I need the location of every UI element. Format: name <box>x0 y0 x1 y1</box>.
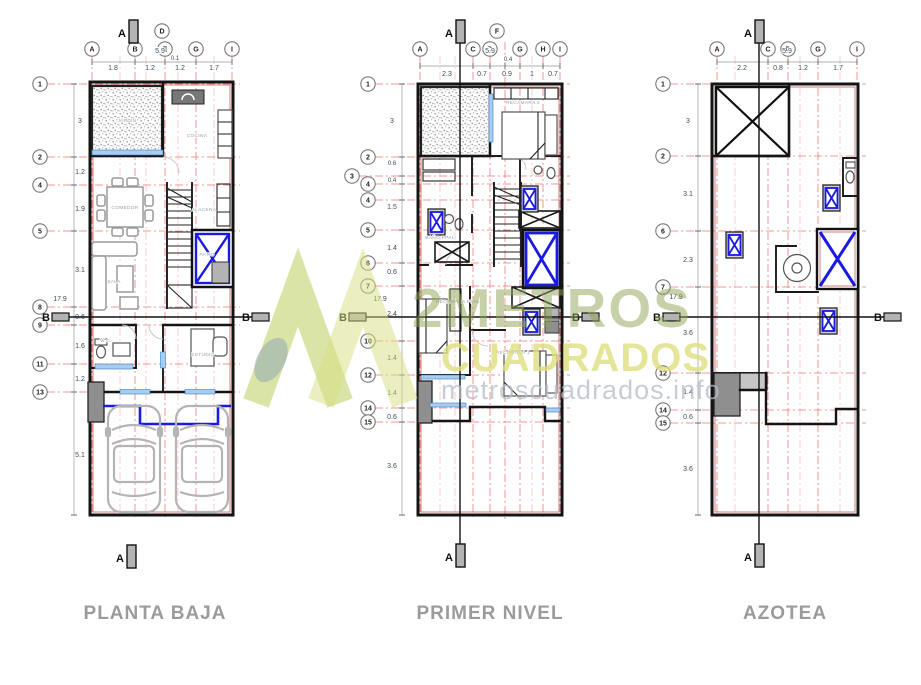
grid-bubble-row: 5 <box>33 224 47 238</box>
window-shaft-blue-x <box>521 186 538 212</box>
grid-bubble-col-a: A <box>710 42 724 56</box>
svg-text:2: 2 <box>366 155 370 162</box>
svg-text:1.2: 1.2 <box>75 376 85 383</box>
grid-bubble-row: 4 <box>33 178 47 192</box>
svg-text:I: I <box>231 47 233 54</box>
grid-bubble-col-b: B <box>128 42 142 56</box>
svg-text:B: B <box>874 312 882 324</box>
svg-text:A: A <box>445 552 453 564</box>
svg-text:15: 15 <box>364 420 372 427</box>
bed-bedroom2 <box>502 112 557 159</box>
section-flag-a-top <box>456 20 465 43</box>
watermark-website: metroscuadrados.info <box>441 375 721 405</box>
svg-text:1: 1 <box>38 82 42 89</box>
stairs <box>167 188 192 308</box>
grid-bubble-row: 12 <box>361 368 375 382</box>
walls <box>712 84 858 515</box>
grid-bubble-col-c: C <box>466 42 480 56</box>
svg-text:5.9: 5.9 <box>485 48 495 55</box>
svg-text:3: 3 <box>686 118 690 125</box>
section-flag-a-top <box>755 20 764 43</box>
grid-bubble-col-g: G <box>811 42 825 56</box>
svg-text:A: A <box>417 47 422 54</box>
floor-plan-drawing: JARDIN COCINA COMEDOR SALA ALACENA PATIO… <box>0 0 921 685</box>
skylight-blue-x <box>820 308 837 334</box>
section-flag-b-right <box>884 313 901 321</box>
svg-text:F: F <box>495 29 500 36</box>
svg-text:A: A <box>89 47 94 54</box>
svg-text:0.4: 0.4 <box>504 57 513 63</box>
svg-text:4: 4 <box>366 198 370 205</box>
svg-text:3.6: 3.6 <box>683 466 693 473</box>
closet-block <box>418 381 432 423</box>
plan-titles: PLANTA BAJA PRIMER NIVEL AZOTEA <box>84 603 828 624</box>
svg-text:13: 13 <box>36 390 44 397</box>
svg-text:2.3: 2.3 <box>683 257 693 264</box>
grid-bubble-row: 14 <box>361 401 375 415</box>
svg-text:1: 1 <box>366 82 370 89</box>
svg-text:6: 6 <box>661 229 665 236</box>
bath-fixtures-top <box>534 166 555 179</box>
room-label-service-patio: PATIO <box>199 252 214 258</box>
section-flag-a-bottom <box>127 545 136 568</box>
grid-bubble-row: 4 <box>361 193 375 207</box>
svg-text:A: A <box>118 28 126 40</box>
grid-bubble-row: 13 <box>33 385 47 399</box>
svg-text:14: 14 <box>364 406 372 413</box>
svg-text:1: 1 <box>530 71 534 78</box>
svg-text:A: A <box>116 553 124 565</box>
roof-void-x <box>716 87 789 156</box>
plan-planta-baja: JARDIN COCINA COMEDOR SALA ALACENA PATIO… <box>33 20 269 568</box>
grid-bubble-row: 11 <box>33 357 47 371</box>
svg-text:3: 3 <box>350 174 354 181</box>
title-planta-baja: PLANTA BAJA <box>84 603 227 624</box>
range-hood <box>172 90 204 104</box>
grid-bubble-col-c: C <box>761 42 775 56</box>
drawing-sheet: JARDIN COCINA COMEDOR SALA ALACENA PATIO… <box>0 0 921 685</box>
svg-text:1.9: 1.9 <box>75 206 85 213</box>
room-label-pantry: ALACENA <box>192 207 217 213</box>
svg-text:1.7: 1.7 <box>209 65 219 72</box>
grid-bubble-row: 2 <box>361 150 375 164</box>
svg-text:1.4: 1.4 <box>387 245 397 252</box>
water-heater <box>212 262 229 283</box>
garage-gate-line <box>103 406 231 424</box>
room-label-wc: W.C. <box>100 338 112 344</box>
svg-text:0.6: 0.6 <box>683 414 693 421</box>
svg-text:3.1: 3.1 <box>683 191 693 198</box>
stairs <box>494 187 521 259</box>
grid-bubble-row: 15 <box>361 415 375 429</box>
svg-text:0.6: 0.6 <box>387 414 397 421</box>
svg-text:A: A <box>714 47 719 54</box>
window-shaft-blue-x <box>428 209 445 235</box>
svg-text:1.5: 1.5 <box>387 204 397 211</box>
svg-text:I: I <box>559 47 561 54</box>
svg-text:0.9: 0.9 <box>502 71 512 78</box>
brand-logo-m <box>247 287 405 403</box>
roof-bath <box>776 246 818 292</box>
svg-text:5.1: 5.1 <box>75 452 85 459</box>
grid-bubble-col-i: I <box>553 42 567 56</box>
grid-bubbles-rows: 1 2 3 4 4 5 6 7 10 12 14 15 <box>345 77 375 429</box>
svg-text:3: 3 <box>78 118 82 125</box>
stair-shaft <box>817 229 858 289</box>
parapet-steps <box>712 373 858 424</box>
svg-text:5: 5 <box>366 228 370 235</box>
skylight-blue-x <box>823 185 840 211</box>
section-flag-a-bottom <box>755 544 764 567</box>
svg-text:0.8: 0.8 <box>773 65 783 72</box>
grid-bubble-row: 2 <box>33 150 47 164</box>
pantry-cabinet <box>217 184 230 226</box>
sofa-set <box>92 242 138 310</box>
grid-bubble-col-h: H <box>536 42 550 56</box>
grid-bubble-col-g: G <box>513 42 527 56</box>
grid-bubble-row: 1 <box>656 77 670 91</box>
title-primer-nivel: PRIMER NIVEL <box>416 603 563 624</box>
svg-text:1.2: 1.2 <box>145 65 155 72</box>
svg-text:0.6: 0.6 <box>387 269 397 276</box>
grid-bubbles-rows: 1 2 4 5 8 9 11 13 <box>33 77 47 399</box>
svg-text:0.4: 0.4 <box>388 178 397 184</box>
grid-bubble-row: 2 <box>656 149 670 163</box>
car-left <box>106 406 162 512</box>
svg-text:B: B <box>242 312 250 324</box>
watermark-brand-bottom: CUADRADOS <box>441 336 710 380</box>
grid-bubble-col-i: I <box>850 42 864 56</box>
service-patio-shaft <box>192 230 233 287</box>
grid-bubble-row: 1 <box>33 77 47 91</box>
svg-text:G: G <box>815 47 821 54</box>
room-label-kitchen: COCINA <box>187 133 208 139</box>
svg-text:B: B <box>42 312 50 324</box>
section-flag-a-bottom <box>456 544 465 567</box>
svg-text:0.7: 0.7 <box>477 71 487 78</box>
svg-text:3.1: 3.1 <box>75 267 85 274</box>
svg-text:G: G <box>517 47 523 54</box>
svg-text:11: 11 <box>36 362 44 369</box>
grid-bubble-row: 5 <box>361 223 375 237</box>
section-flag-b-left <box>52 313 69 321</box>
grid-bubble-col-a: A <box>85 42 99 56</box>
skylight-blue-x <box>726 232 743 258</box>
grid-bubble-col-a: A <box>413 42 427 56</box>
grid-bubble-col-f: F <box>490 24 504 38</box>
grid-bubble-col-d: D <box>155 24 169 38</box>
svg-text:5: 5 <box>38 229 42 236</box>
svg-text:3.6: 3.6 <box>387 463 397 470</box>
watermark-brand-top: 2METROS <box>412 277 692 339</box>
svg-text:5.9: 5.9 <box>155 48 165 55</box>
svg-text:17.9: 17.9 <box>53 296 67 303</box>
room-label-study: ESTUDIO <box>191 352 214 358</box>
car-right <box>174 406 230 512</box>
svg-text:15: 15 <box>659 421 667 428</box>
svg-text:2: 2 <box>661 154 665 161</box>
svg-text:1: 1 <box>661 82 665 89</box>
svg-text:2.2: 2.2 <box>737 65 747 72</box>
svg-text:B: B <box>132 47 137 54</box>
svg-text:0.1: 0.1 <box>171 56 180 62</box>
room-label-living: SALA <box>107 279 121 285</box>
svg-text:A: A <box>744 552 752 564</box>
svg-text:0.7: 0.7 <box>548 71 558 78</box>
room-label-garden: JARDIN <box>117 118 136 124</box>
svg-text:1.2: 1.2 <box>75 169 85 176</box>
svg-text:C: C <box>470 47 475 54</box>
pilaster <box>88 382 104 422</box>
svg-text:4: 4 <box>38 183 42 190</box>
svg-text:1.2: 1.2 <box>798 65 808 72</box>
svg-text:2.3: 2.3 <box>442 71 452 78</box>
room-label-main-bath: BAÑO PPAL <box>425 234 455 241</box>
grid-bubble-row: 4 <box>361 177 375 191</box>
svg-text:8: 8 <box>38 305 42 312</box>
room-label-bedroom2: RECAMARA 2 <box>506 100 540 106</box>
svg-text:C: C <box>765 47 770 54</box>
section-flag-b-right <box>252 313 269 321</box>
svg-text:4: 4 <box>366 182 370 189</box>
svg-text:3: 3 <box>390 118 394 125</box>
svg-text:12: 12 <box>364 373 372 380</box>
svg-text:1.8: 1.8 <box>108 65 118 72</box>
svg-text:I: I <box>856 47 858 54</box>
void-stippled-area <box>421 87 490 156</box>
svg-text:H: H <box>540 47 545 54</box>
title-azotea: AZOTEA <box>743 603 827 624</box>
watermark: 2METROS CUADRADOS metroscuadrados.info <box>247 277 720 405</box>
grid-bubble-col-g: G <box>189 42 203 56</box>
grid-bubble-col-i: I <box>225 42 239 56</box>
svg-text:0.6: 0.6 <box>388 161 397 167</box>
svg-text:A: A <box>744 28 752 40</box>
grid-bubble-row: 3 <box>345 169 359 183</box>
svg-text:1.2: 1.2 <box>175 65 185 72</box>
svg-text:14: 14 <box>659 408 667 415</box>
closet-top <box>494 88 558 99</box>
svg-text:1.6: 1.6 <box>75 343 85 350</box>
svg-text:2: 2 <box>38 155 42 162</box>
svg-text:D: D <box>159 29 164 36</box>
study-desk <box>191 329 227 366</box>
grid-bubble-row: 6 <box>656 224 670 238</box>
grid-bubble-row: 15 <box>656 416 670 430</box>
svg-text:1.7: 1.7 <box>833 65 843 72</box>
room-label-dining: COMEDOR <box>111 205 138 211</box>
roof-toilet <box>846 162 855 183</box>
grid-bubble-row: 1 <box>361 77 375 91</box>
svg-text:A: A <box>445 28 453 40</box>
section-flag-a-top <box>129 20 138 43</box>
svg-text:G: G <box>193 47 199 54</box>
svg-text:5.9: 5.9 <box>782 48 792 55</box>
